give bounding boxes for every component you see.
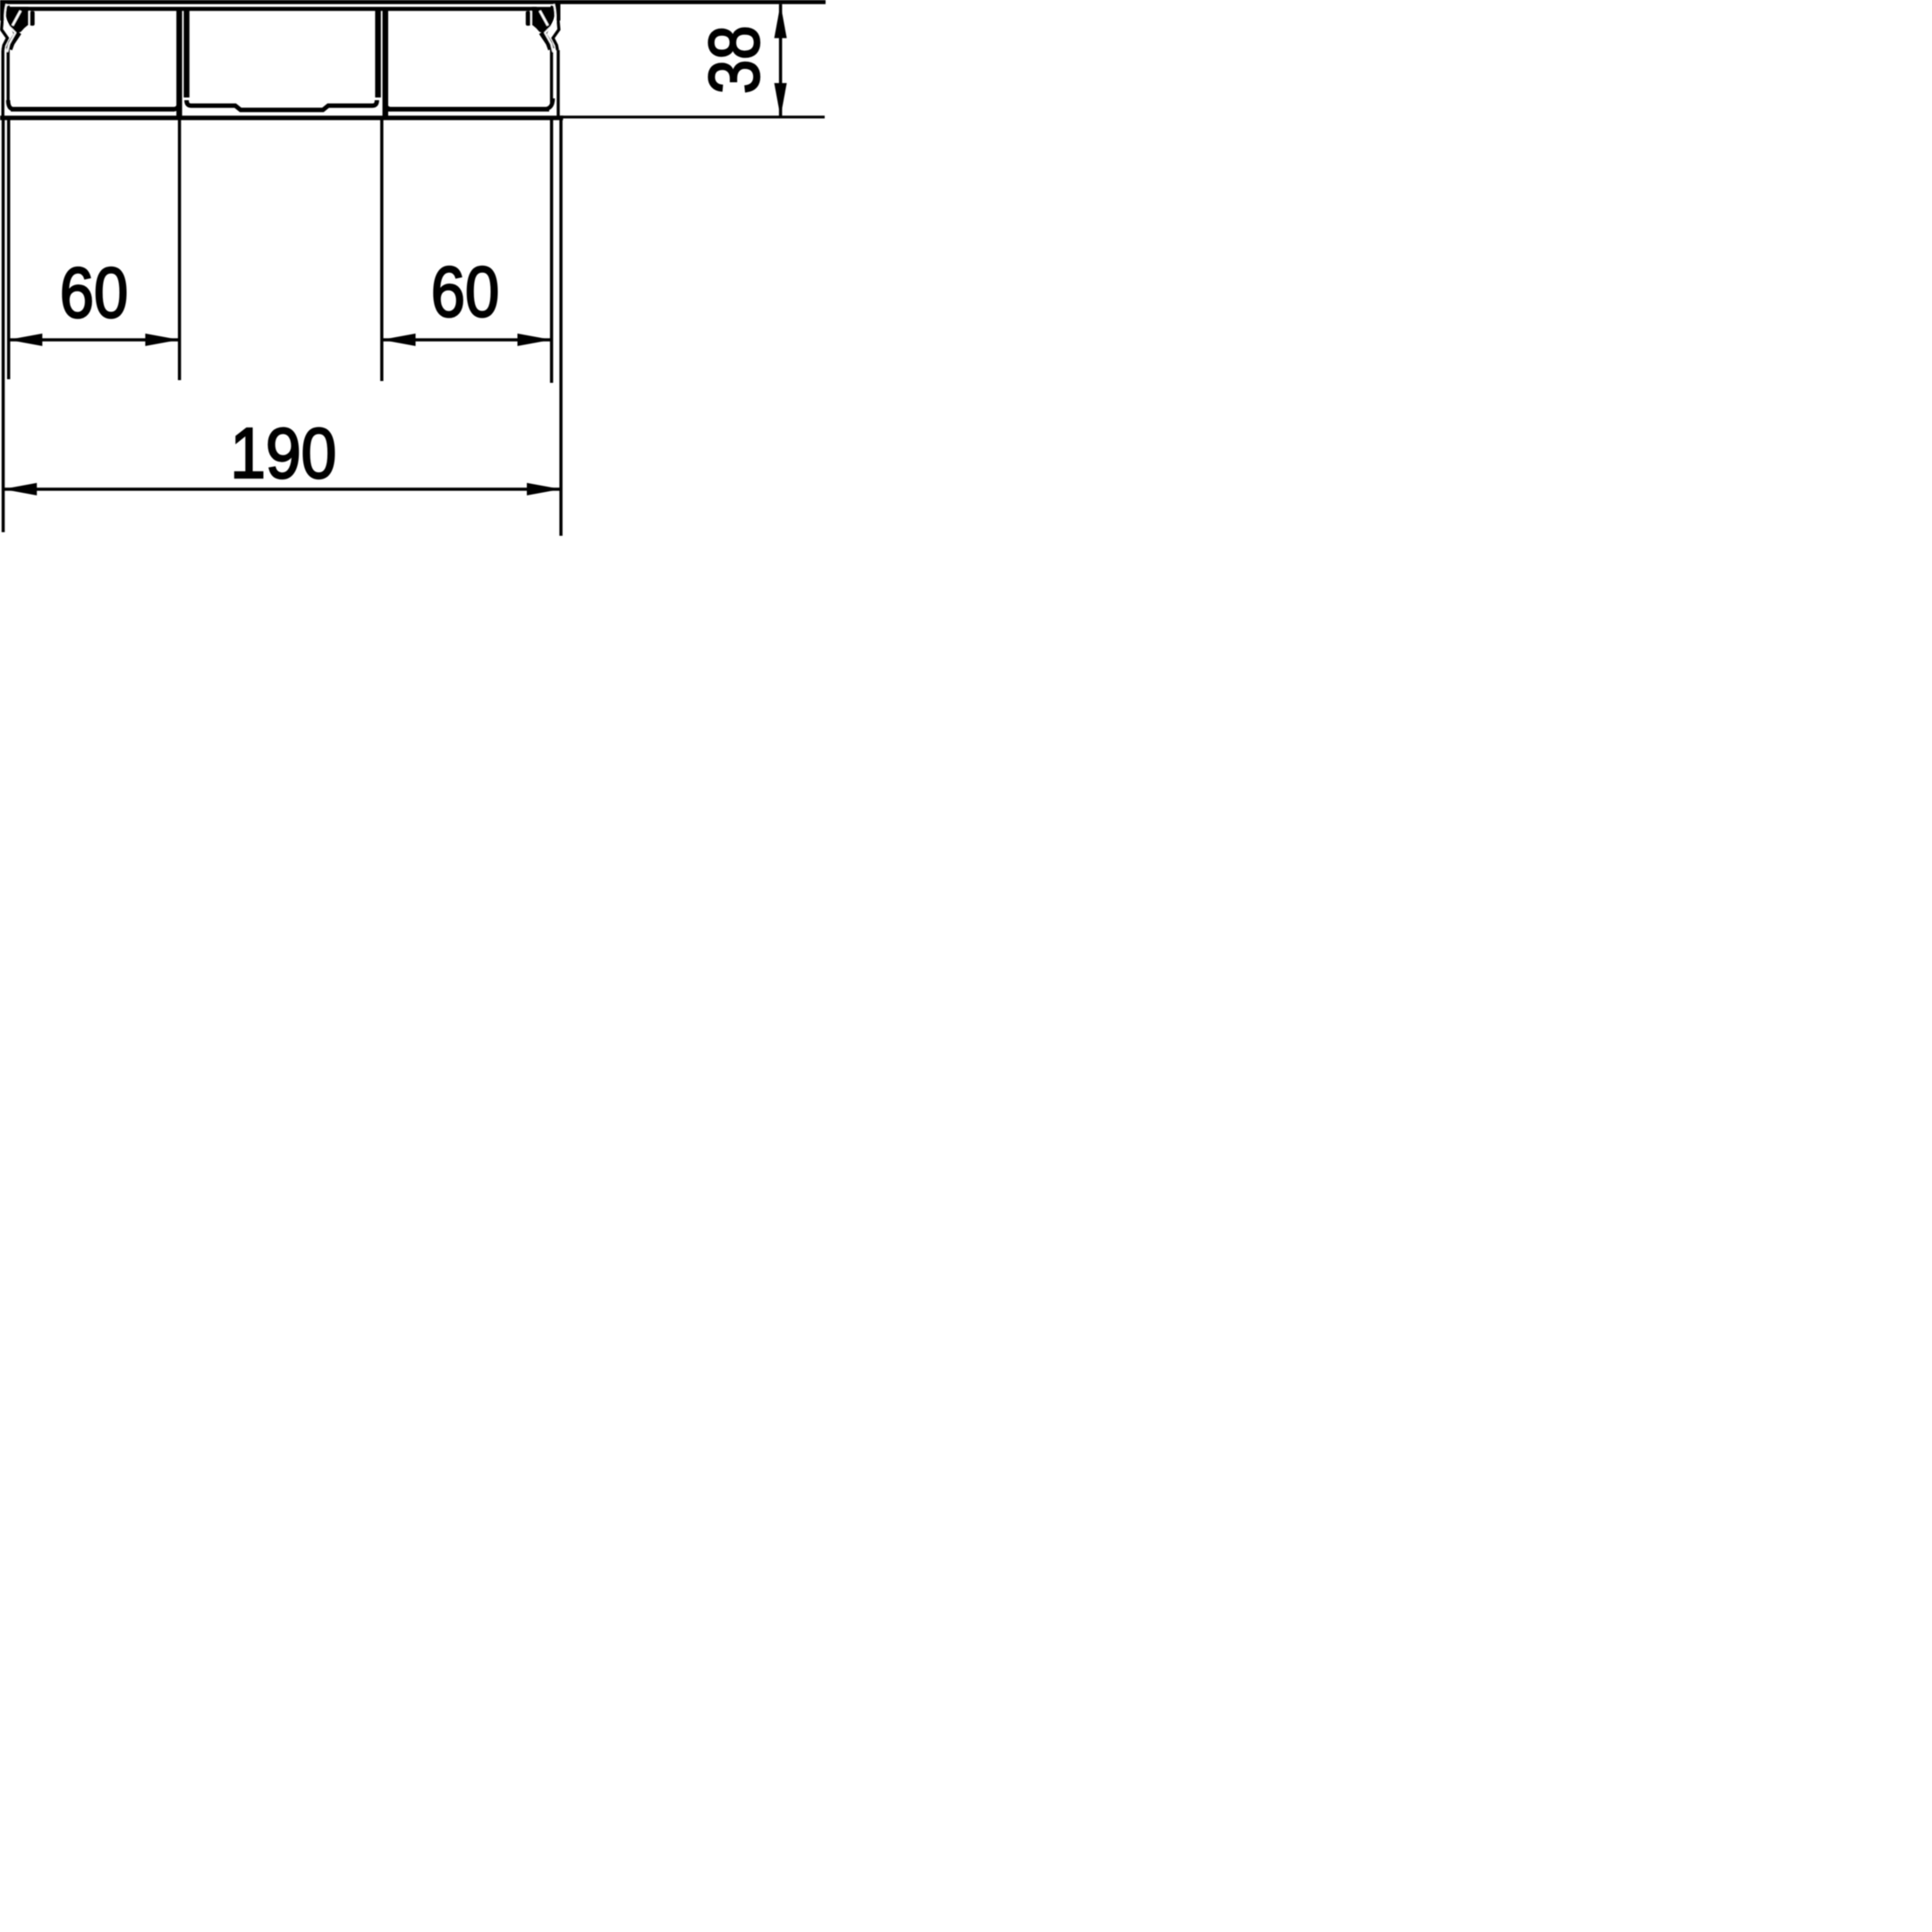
svg-text:38: 38 (693, 25, 774, 94)
svg-text:190: 190 (230, 413, 336, 494)
svg-text:60: 60 (60, 252, 129, 333)
svg-text:60: 60 (431, 251, 500, 332)
